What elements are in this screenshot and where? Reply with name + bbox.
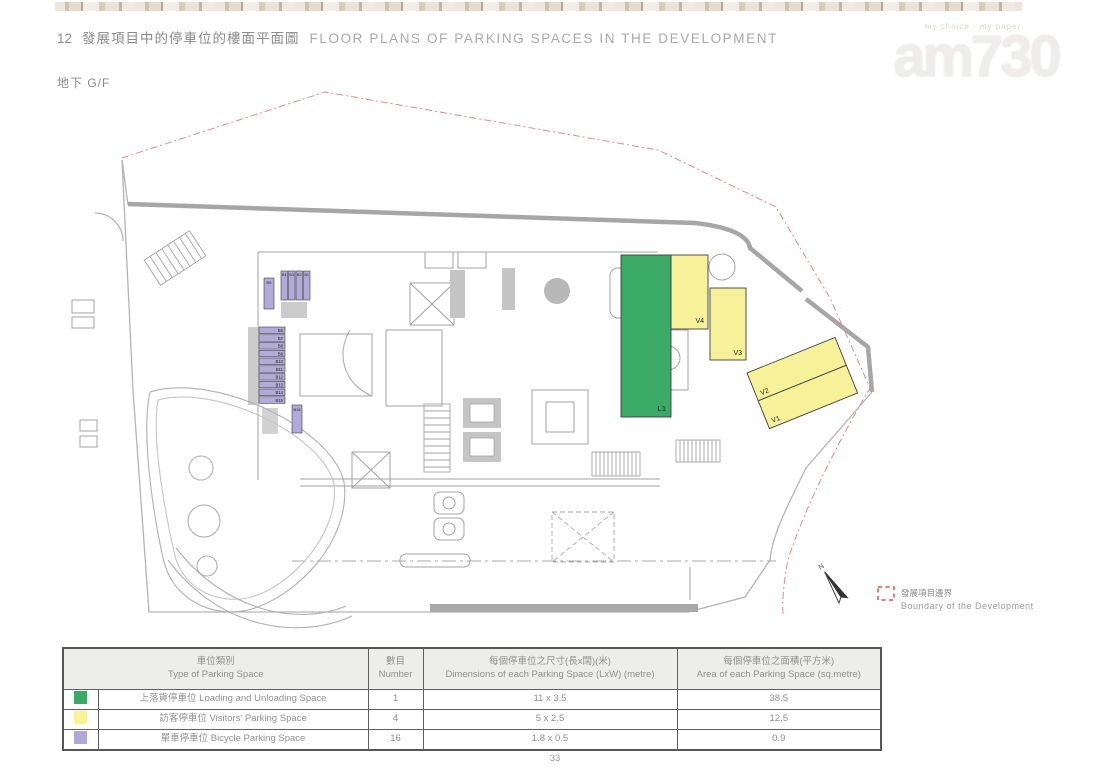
parking-summary-table: 車位類別 Type of Parking Space 數目 Number 每個停… xyxy=(62,647,882,751)
header-number-zh: 數目 xyxy=(369,656,423,669)
lift-doors xyxy=(470,404,494,456)
space-b4-label: B4 xyxy=(282,273,287,277)
table-row-bicycle: 單車停車位 Bicycle Parking Space 16 1.8 x 0.5… xyxy=(63,730,881,751)
development-boundary-line xyxy=(122,92,870,614)
space-b13-label: B13 xyxy=(276,382,284,387)
north-arrow: N xyxy=(816,562,848,604)
area-cell: 38.5 xyxy=(677,690,881,710)
space-b8-label: B8 xyxy=(278,344,284,349)
table-row-visitor: 訪客停車位 Visitors' Parking Space 4 5 x 2.5 … xyxy=(63,710,881,730)
space-b15-label: B15 xyxy=(276,398,284,403)
space-v4-label: V4 xyxy=(695,318,704,325)
header-dimensions-en: Dimensions of each Parking Space (LxW) (… xyxy=(424,669,677,682)
header-dimensions-zh: 每個停車位之尺寸(長x闊)(米) xyxy=(424,656,677,669)
space-b12-label: B12 xyxy=(276,375,284,380)
space-b16-label: B16 xyxy=(293,407,301,412)
number-cell: 4 xyxy=(368,710,423,730)
number-cell: 1 xyxy=(368,690,423,710)
space-b11-label: B11 xyxy=(276,367,284,372)
space-b5-label: B5 xyxy=(267,280,273,285)
space-b3-label: B3 xyxy=(289,273,294,277)
dimensions-cell: 5 x 2.5 xyxy=(423,710,677,730)
header-type: 車位類別 Type of Parking Space xyxy=(63,648,368,690)
boundary-legend-zh: 發展項目邊界 xyxy=(901,588,953,598)
floor-plan: L1 V4 V3 V2 V1 B5 B4 B3 B2 B1 xyxy=(0,0,1110,645)
swatch-cell xyxy=(63,690,98,710)
header-area: 每個停車位之面積(平方米) Area of each Parking Space… xyxy=(677,648,881,690)
space-b9-label: B9 xyxy=(278,351,284,356)
sidewalk-band xyxy=(430,604,698,612)
boundary-legend: 發展項目邊界 Boundary of the Development xyxy=(878,587,1034,611)
dimensions-cell: 1.8 x 0.5 xyxy=(423,730,677,751)
space-b1-label: B1 xyxy=(304,273,309,277)
space-l1-label: L1 xyxy=(658,404,666,413)
header-area-zh: 每個停車位之面積(平方米) xyxy=(678,656,881,669)
loading-swatch xyxy=(74,691,87,704)
boundary-legend-swatch xyxy=(878,587,894,600)
type-cell: 上落貨停車位 Loading and Unloading Space xyxy=(98,690,368,710)
header-number-en: Number xyxy=(369,669,423,682)
header-type-zh: 車位類別 xyxy=(64,656,368,669)
number-cell: 16 xyxy=(368,730,423,751)
space-l1 xyxy=(621,255,671,417)
space-b7-label: B7 xyxy=(278,336,284,341)
north-arrow-label: N xyxy=(818,563,826,572)
header-dimensions: 每個停車位之尺寸(長x闊)(米) Dimensions of each Park… xyxy=(423,648,677,690)
area-cell: 0.9 xyxy=(677,730,881,751)
header-number: 數目 Number xyxy=(368,648,423,690)
parking-spaces-visitor: V4 V3 V2 V1 xyxy=(671,255,858,429)
visitor-swatch xyxy=(74,711,87,724)
type-cell: 訪客停車位 Visitors' Parking Space xyxy=(98,710,368,730)
table-header-row: 車位類別 Type of Parking Space 數目 Number 每個停… xyxy=(63,648,881,690)
brochure-page: 12 發展項目中的停車位的樓面平面圖 FLOOR PLANS OF PARKIN… xyxy=(0,0,1110,778)
space-b6-label: B6 xyxy=(278,328,284,333)
header-area-en: Area of each Parking Space (sq.metre) xyxy=(678,669,881,682)
page-number: 33 xyxy=(0,753,1110,764)
area-cell: 12.5 xyxy=(677,710,881,730)
space-v3-label: V3 xyxy=(733,350,742,357)
dimensions-cell: 11 x 3.5 xyxy=(423,690,677,710)
parking-space-loading: L1 xyxy=(621,255,671,417)
swatch-cell xyxy=(63,730,98,751)
bicycle-swatch xyxy=(74,731,87,744)
boundary-legend-en: Boundary of the Development xyxy=(901,601,1034,611)
type-cell: 單車停車位 Bicycle Parking Space xyxy=(98,730,368,751)
space-b2-label: B2 xyxy=(297,273,302,277)
site-walls xyxy=(128,204,872,392)
space-b10-label: B10 xyxy=(276,359,284,364)
dashed-details xyxy=(292,512,776,562)
table-row-loading: 上落貨停車位 Loading and Unloading Space 1 11 … xyxy=(63,690,881,710)
space-b14-label: B14 xyxy=(276,390,284,395)
header-type-en: Type of Parking Space xyxy=(64,669,368,682)
swatch-cell xyxy=(63,710,98,730)
